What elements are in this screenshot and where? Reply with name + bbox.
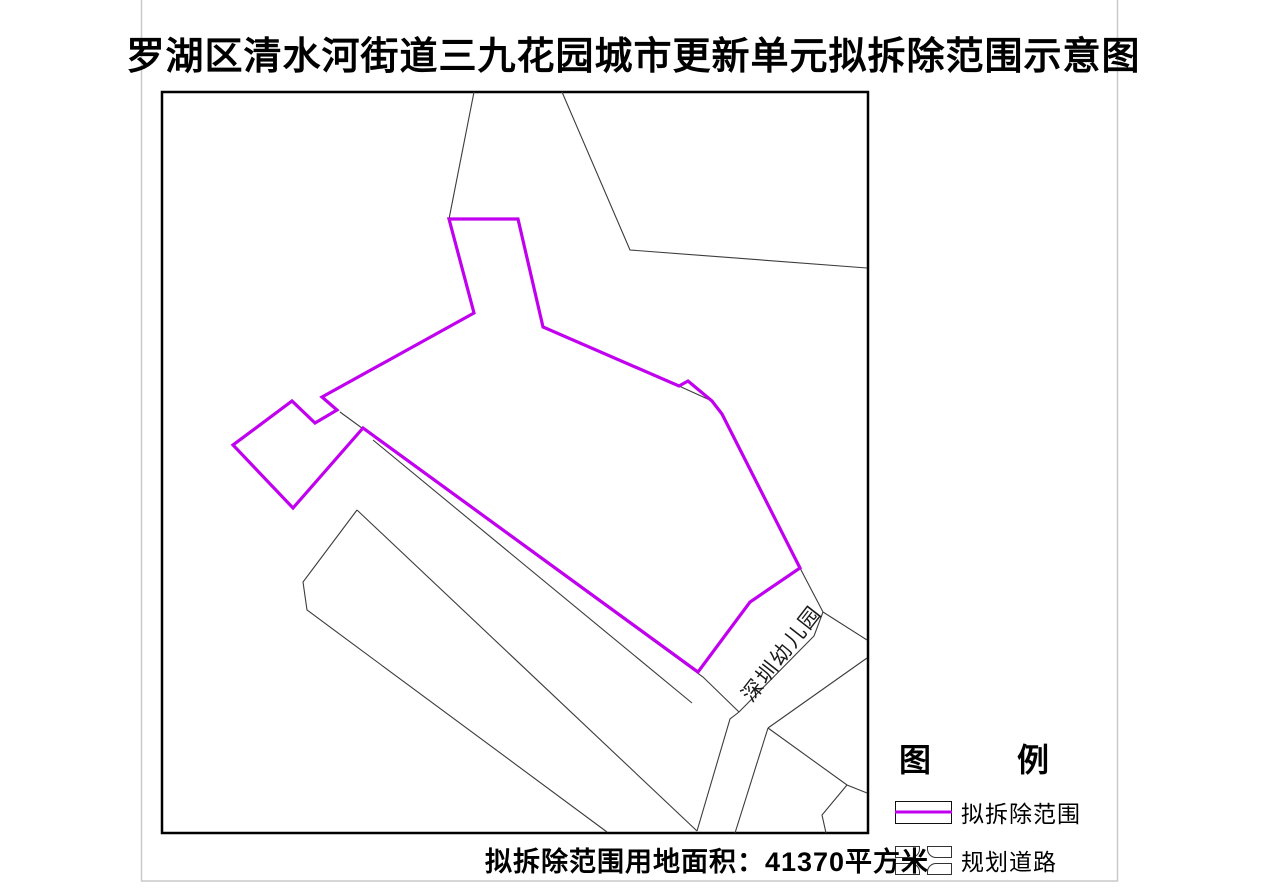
legend-item-demolition: 拟拆除范围 (895, 795, 1095, 829)
area-caption: 拟拆除范围用地面积：41370平方米 (485, 840, 929, 879)
road-symbol-block (927, 846, 952, 858)
legend-item-label: 拟拆除范围 (961, 795, 1081, 829)
demolition-range-symbol (895, 801, 952, 824)
legend-title-char: 例 (1017, 735, 1049, 781)
demolition-line-swatch (895, 811, 952, 814)
road-symbol-block (927, 863, 952, 875)
map-frame (162, 92, 868, 833)
legend-item-label: 规划道路 (961, 843, 1057, 877)
page-title: 罗湖区清水河街道三九花园城市更新单元拟拆除范围示意图 (0, 25, 1267, 80)
legend-title: 图 例 (899, 735, 1049, 781)
legend-title-char: 图 (899, 735, 931, 781)
